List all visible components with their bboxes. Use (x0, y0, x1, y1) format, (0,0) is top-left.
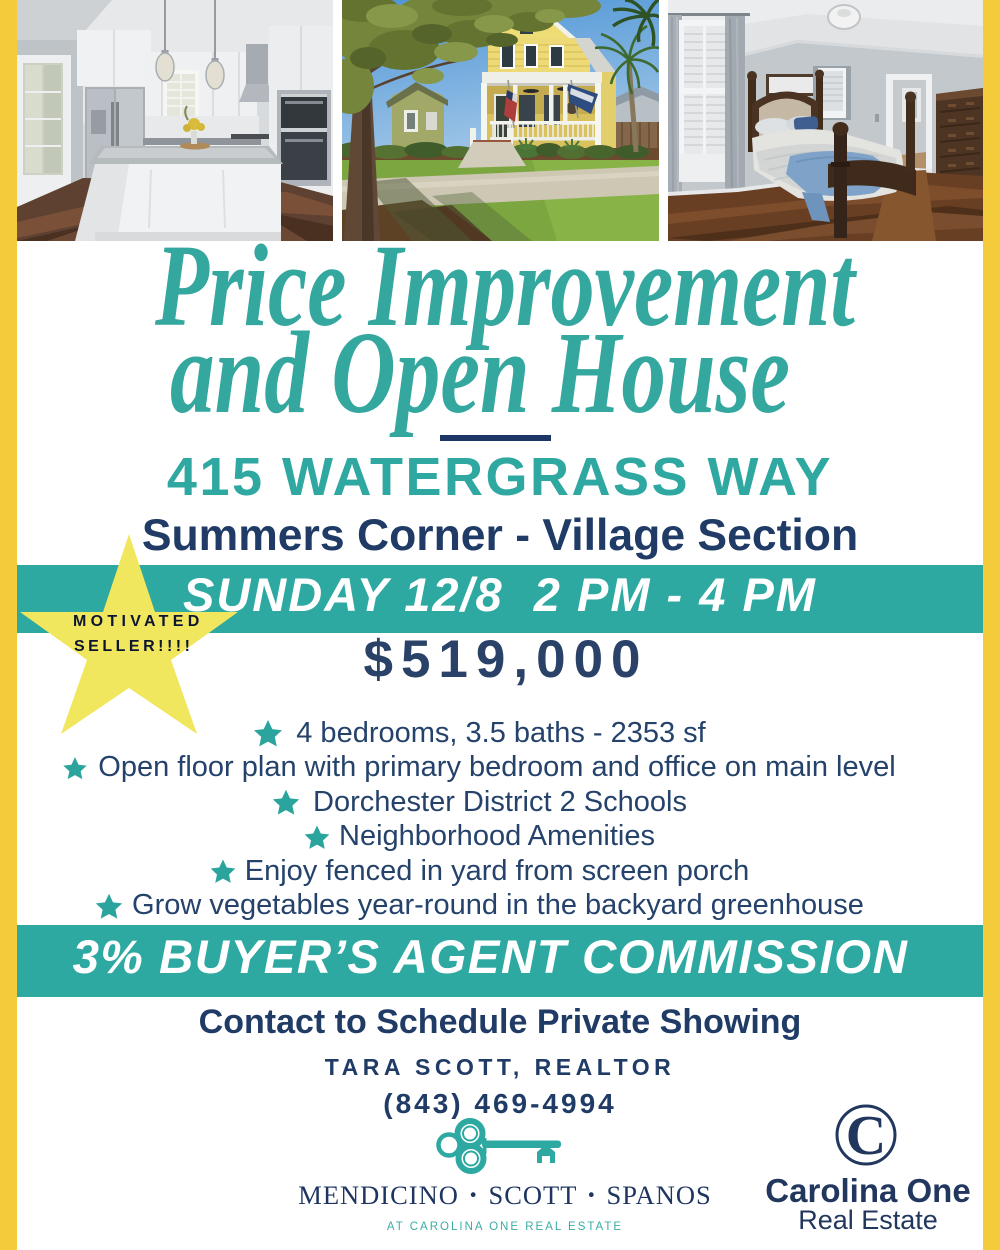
svg-text:and Open House: and Open House (170, 307, 790, 438)
svg-text:Carolina One: Carolina One (765, 1172, 970, 1209)
svg-text:C: C (846, 1105, 886, 1167)
svg-text:Real Estate: Real Estate (798, 1205, 938, 1235)
